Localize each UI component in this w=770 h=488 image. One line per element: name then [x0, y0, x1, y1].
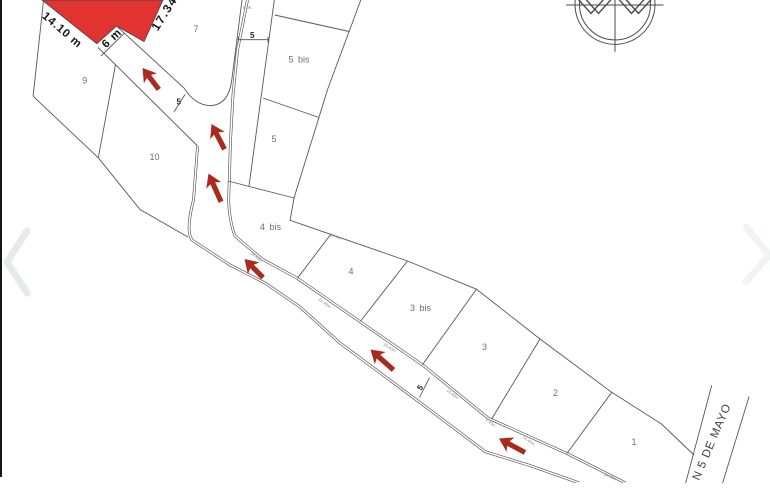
svg-text:5: 5 — [250, 31, 255, 40]
svg-text:4 bis: 4 bis — [260, 222, 282, 232]
svg-text:4: 4 — [349, 267, 354, 277]
svg-text:3 bis: 3 bis — [410, 303, 432, 313]
svg-text:9: 9 — [82, 76, 87, 86]
svg-text:5: 5 — [177, 98, 182, 107]
svg-text:2: 2 — [553, 388, 558, 398]
svg-text:10: 10 — [150, 152, 160, 162]
svg-text:7: 7 — [194, 24, 199, 34]
svg-text:3: 3 — [482, 342, 487, 352]
svg-text:5: 5 — [272, 134, 277, 144]
svg-text:6.06: 6.06 — [243, 5, 252, 10]
svg-text:5 bis: 5 bis — [289, 55, 311, 65]
svg-text:1: 1 — [632, 437, 637, 447]
